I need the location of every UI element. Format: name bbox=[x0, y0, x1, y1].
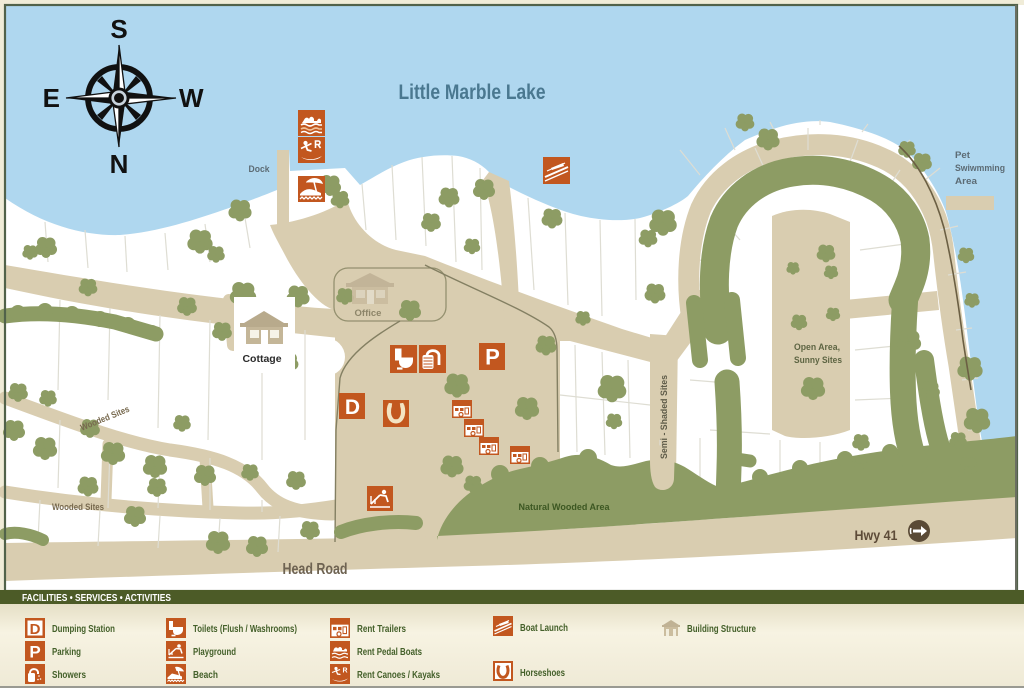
svg-text:Dumping Station: Dumping Station bbox=[52, 623, 115, 635]
svg-text:FACILITIES • SERVICES • ACTIVI: FACILITIES • SERVICES • ACTIVITIES bbox=[22, 592, 171, 604]
svg-text:W: W bbox=[179, 83, 204, 113]
svg-text:E: E bbox=[43, 83, 60, 113]
svg-text:D: D bbox=[345, 396, 360, 419]
svg-text:Rent Canoes / Kayaks: Rent Canoes / Kayaks bbox=[357, 669, 440, 681]
svg-text:Dock: Dock bbox=[249, 164, 271, 175]
svg-text:Showers: Showers bbox=[52, 669, 86, 681]
svg-text:Wooded Sites: Wooded Sites bbox=[52, 502, 104, 512]
svg-text:Office: Office bbox=[355, 308, 382, 319]
svg-text:Sunny Sites: Sunny Sites bbox=[794, 355, 842, 366]
svg-text:D: D bbox=[30, 621, 41, 638]
svg-text:Rent Pedal Boats: Rent Pedal Boats bbox=[357, 646, 422, 658]
svg-text:Semi - Shaded Sites: Semi - Shaded Sites bbox=[659, 375, 670, 459]
svg-text:Parking: Parking bbox=[52, 646, 81, 658]
svg-text:P: P bbox=[29, 643, 40, 662]
svg-text:Playground: Playground bbox=[193, 646, 236, 658]
svg-text:Natural Wooded Area: Natural Wooded Area bbox=[519, 502, 611, 513]
svg-text:S: S bbox=[110, 14, 127, 44]
svg-text:Rent Trailers: Rent Trailers bbox=[357, 623, 406, 635]
svg-text:Area: Area bbox=[955, 176, 978, 187]
svg-text:Beach: Beach bbox=[193, 669, 218, 681]
svg-text:Pet: Pet bbox=[955, 150, 971, 161]
svg-text:Head Road: Head Road bbox=[283, 561, 348, 578]
svg-text:Boat Launch: Boat Launch bbox=[520, 622, 568, 634]
svg-text:Open Area,: Open Area, bbox=[794, 342, 840, 353]
svg-text:P: P bbox=[485, 345, 500, 370]
svg-text:Cottage: Cottage bbox=[242, 353, 281, 365]
svg-text:Little Marble Lake: Little Marble Lake bbox=[399, 81, 546, 104]
svg-text:Hwy 41: Hwy 41 bbox=[855, 528, 898, 543]
svg-text:R: R bbox=[342, 668, 347, 675]
svg-text:Toilets (Flush / Washrooms): Toilets (Flush / Washrooms) bbox=[193, 623, 297, 635]
svg-text:N: N bbox=[110, 149, 129, 179]
svg-text:Swiwmming: Swiwmming bbox=[955, 163, 1005, 174]
svg-text:Building Structure: Building Structure bbox=[687, 623, 756, 635]
svg-text:Horseshoes: Horseshoes bbox=[520, 667, 565, 679]
